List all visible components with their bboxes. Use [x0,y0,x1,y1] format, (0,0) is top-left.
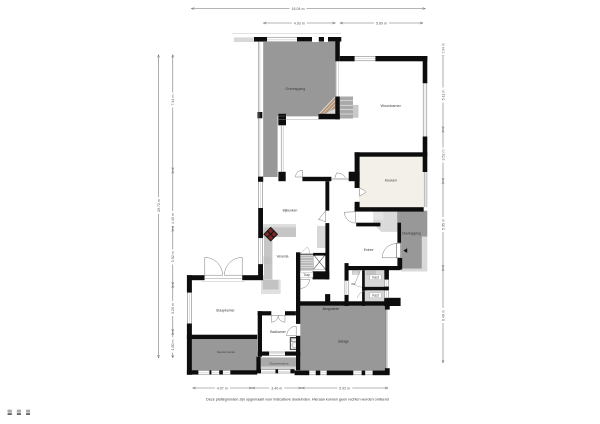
svg-text:Bijkeuken: Bijkeuken [283,208,298,212]
svg-text:Slaapkamer: Slaapkamer [216,308,236,312]
svg-text:6.49 m: 6.49 m [441,310,445,321]
svg-text:Kantoorruimte: Kantoorruimte [217,350,236,354]
svg-text:Wc: Wc [351,282,356,286]
svg-text:4.93 m: 4.93 m [294,21,305,25]
svg-text:7.44 m: 7.44 m [171,95,175,106]
svg-text:5.92 m: 5.92 m [339,387,350,391]
svg-text:Trap: Trap [303,273,310,277]
svg-text:Kast: Kast [372,276,379,280]
svg-text:Overkapping: Overkapping [285,87,305,91]
svg-text:1.80 m: 1.80 m [171,340,175,351]
svg-text:3.52 m: 3.52 m [441,150,445,161]
svg-text:5.95 m: 5.95 m [441,219,445,230]
svg-text:Woonkamer: Woonkamer [380,104,401,108]
svg-text:Garage: Garage [338,339,349,343]
svg-text:3.20 m: 3.20 m [171,303,175,314]
svg-text:7.04 m: 7.04 m [441,43,445,53]
svg-text:5.11 m: 5.11 m [441,90,445,101]
svg-text:5.69 m: 5.69 m [376,21,387,25]
svg-text:Badkamer: Badkamer [270,330,286,334]
svg-text:Veranda: Veranda [277,254,289,258]
svg-text:3.92 m: 3.92 m [171,251,175,262]
svg-text:Bergruimte: Bergruimte [323,307,340,311]
svg-text:20.72 m: 20.72 m [157,199,161,212]
svg-text:Doucheruimte: Doucheruimte [269,361,289,365]
svg-text:4.07 m: 4.07 m [217,387,228,391]
svg-text:Deze plattegronden zijn opgema: Deze plattegronden zijn opgemaakt voor i… [206,397,389,401]
svg-text:3.40 m: 3.40 m [271,387,282,391]
svg-text:Keuken: Keuken [385,179,397,183]
svg-text:4.40 m: 4.40 m [171,213,175,224]
svg-text:Overkapping: Overkapping [402,231,421,235]
svg-text:Entree: Entree [364,248,374,252]
svg-text:16.04 m: 16.04 m [292,7,305,11]
svg-text:Kast: Kast [372,294,379,298]
